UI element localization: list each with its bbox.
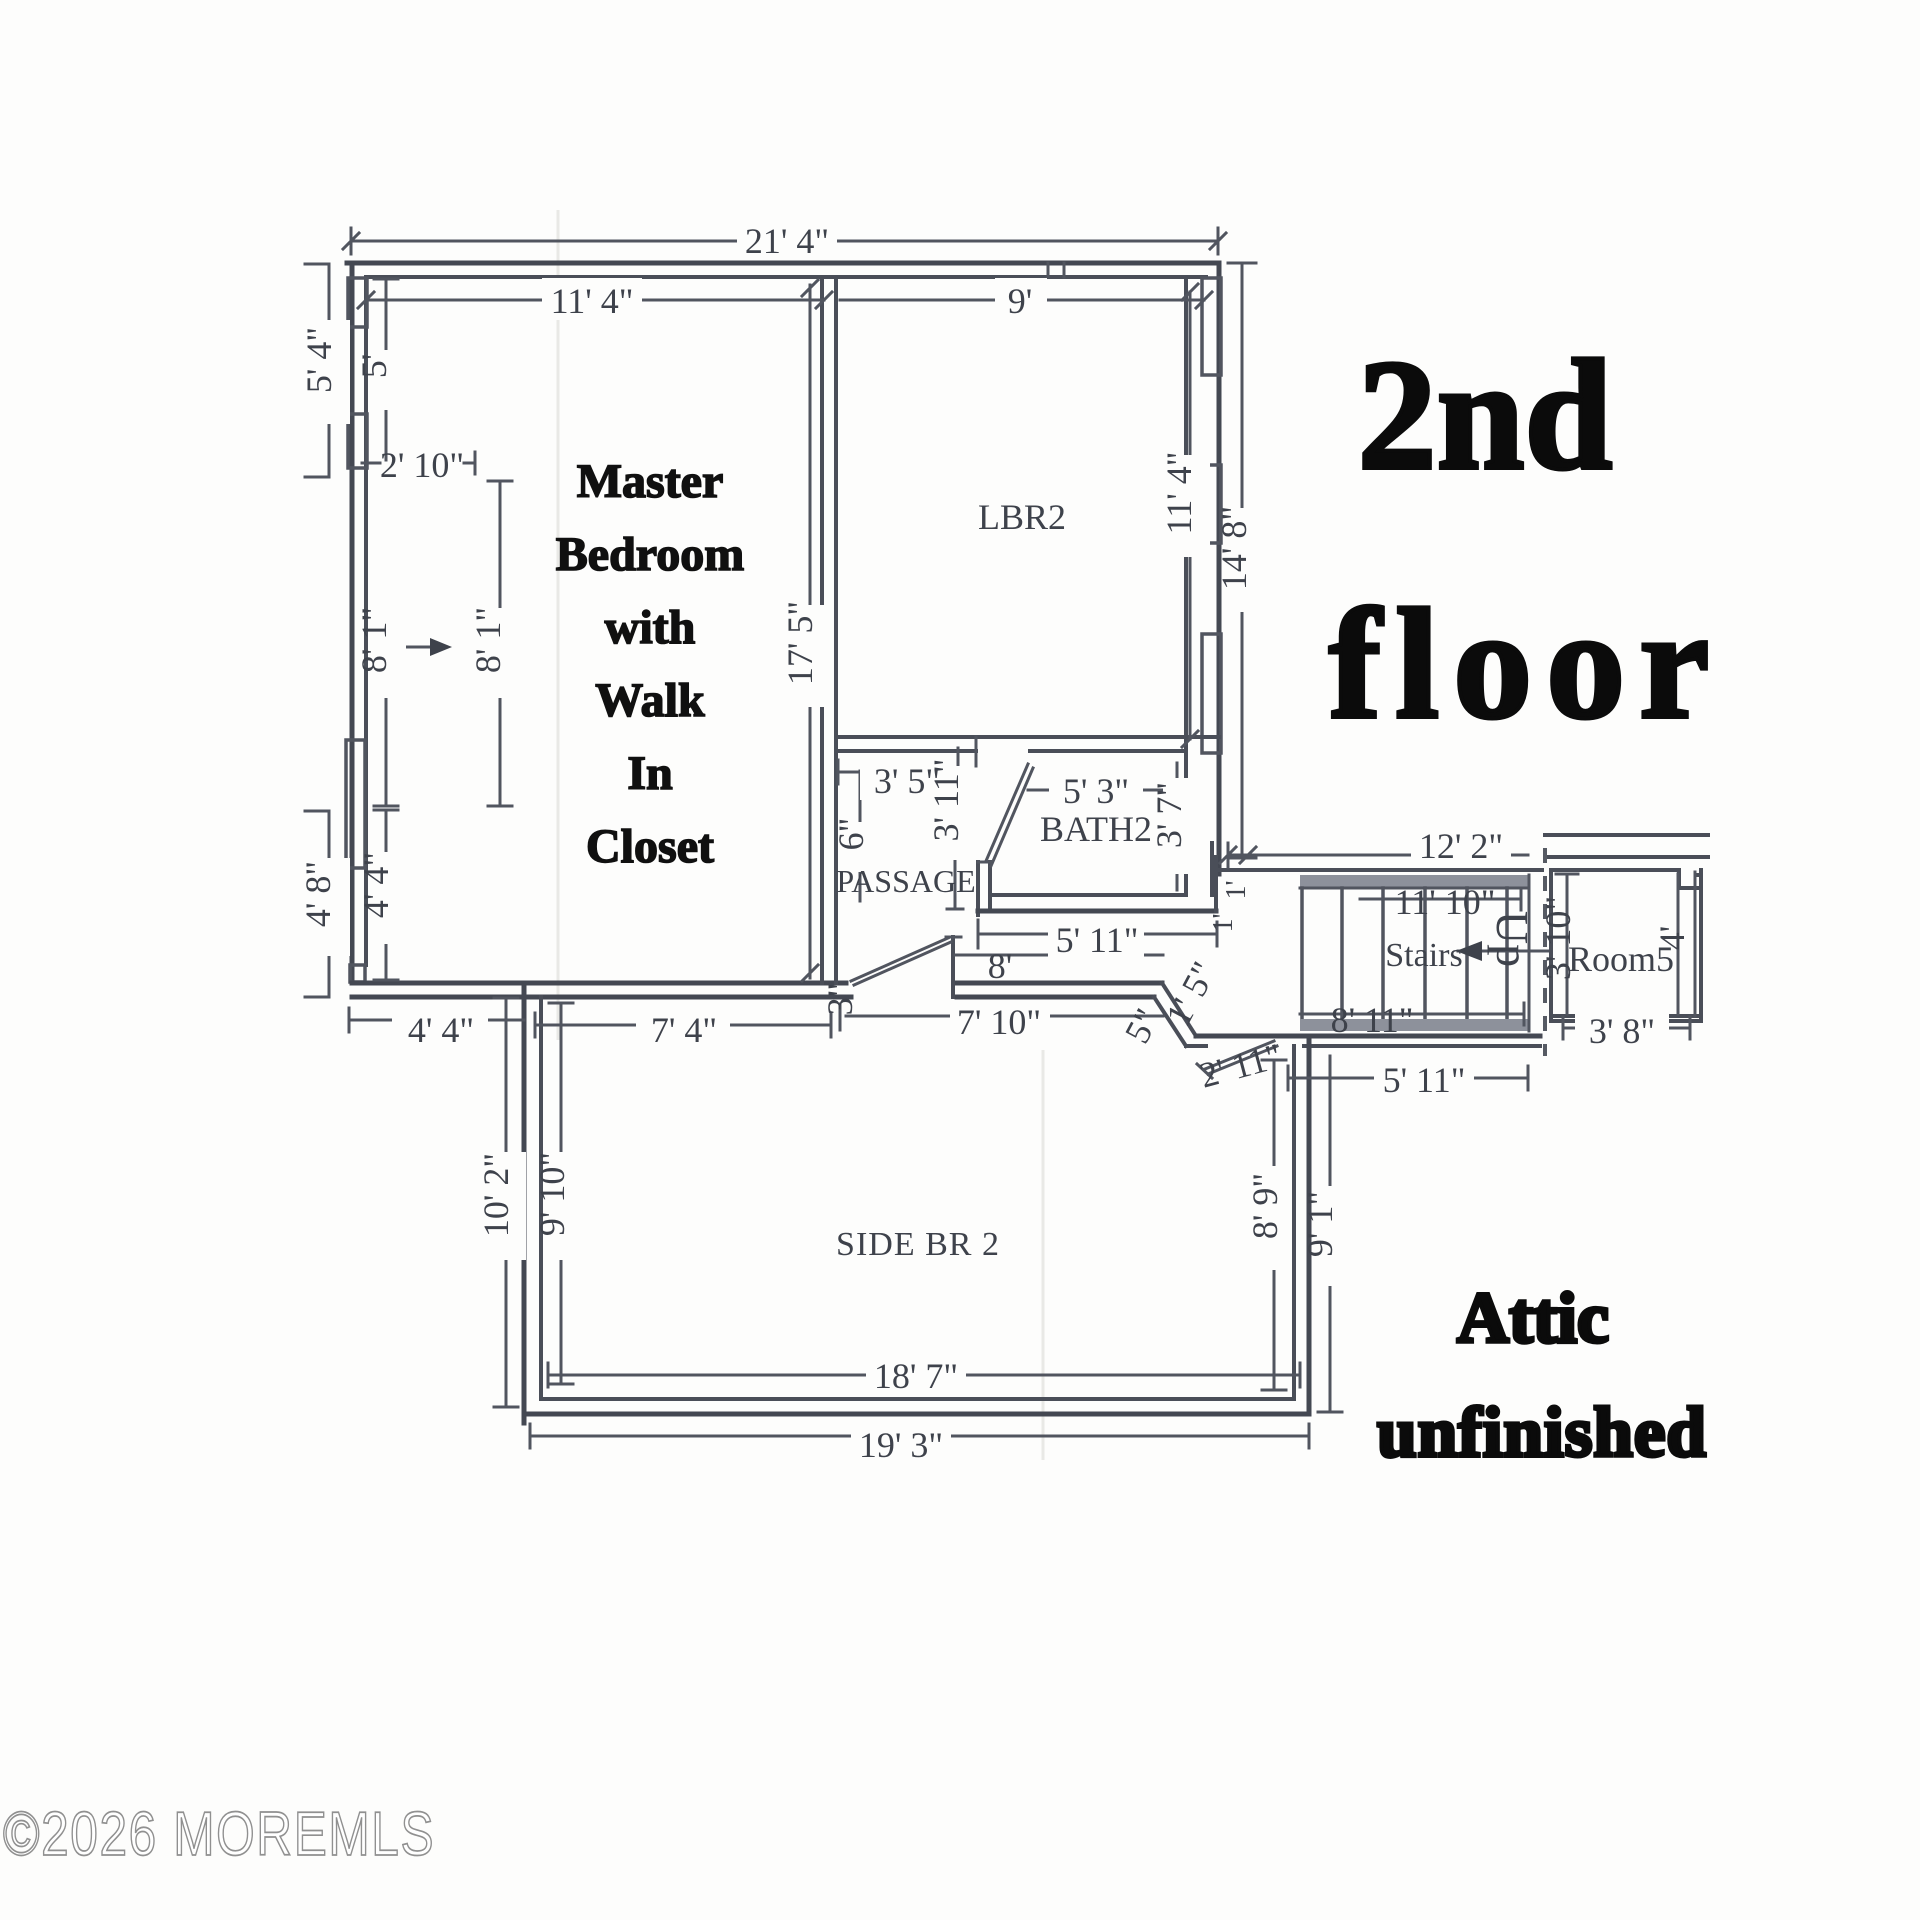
svg-text:5' 3": 5' 3" (1063, 771, 1129, 811)
svg-text:8' 9": 8' 9" (1245, 1173, 1285, 1239)
svg-text:8' 11": 8' 11" (1331, 1000, 1414, 1040)
svg-text:SIDE BR 2: SIDE BR 2 (836, 1226, 1000, 1263)
svg-text:12' 2": 12' 2" (1419, 826, 1503, 866)
svg-text:3' 11": 3' 11" (926, 759, 966, 842)
svg-text:4' 8": 4' 8" (298, 861, 338, 927)
svg-text:11' 10": 11' 10" (1395, 882, 1496, 922)
svg-text:17' 5": 17' 5" (780, 601, 820, 685)
svg-text:1': 1' (1221, 880, 1252, 899)
svg-text:3' 8": 3' 8" (1589, 1011, 1655, 1051)
svg-text:LBR2: LBR2 (978, 497, 1066, 537)
svg-text:7' 10": 7' 10" (957, 1002, 1041, 1042)
svg-text:PASSAGE: PASSAGE (836, 863, 975, 899)
svg-text:2' 10": 2' 10" (380, 445, 464, 485)
svg-text:7' 4": 7' 4" (651, 1010, 717, 1050)
svg-text:4' 4": 4' 4" (408, 1010, 474, 1050)
svg-text:Up: Up (1487, 911, 1538, 967)
svg-text:9' 1": 9' 1" (1300, 1191, 1340, 1257)
svg-text:11' 4": 11' 4" (1159, 452, 1199, 535)
svg-text:2nd: 2nd (1358, 328, 1613, 503)
svg-text:5' 11": 5' 11" (1383, 1060, 1466, 1100)
svg-text:Closet: Closet (586, 820, 714, 873)
svg-text:3' 7": 3' 7" (1149, 782, 1189, 848)
svg-text:Bedroom: Bedroom (556, 528, 744, 581)
svg-text:floor: floor (1329, 577, 1724, 752)
svg-text:10' 2": 10' 2" (476, 1153, 516, 1237)
svg-text:Attic: Attic (1457, 1278, 1609, 1358)
svg-text:Master: Master (577, 455, 724, 508)
svg-text:8' 1": 8' 1" (468, 607, 508, 673)
svg-text:14' 8": 14' 8" (1214, 506, 1254, 590)
svg-text:4' 4": 4' 4" (356, 852, 396, 918)
svg-text:19' 3": 19' 3" (859, 1425, 943, 1465)
svg-text:5': 5' (354, 354, 394, 379)
svg-text:In: In (627, 747, 672, 800)
svg-text:Stairs: Stairs (1385, 937, 1462, 974)
svg-text:with: with (605, 601, 696, 654)
svg-text:©2026 MOREMLS: ©2026 MOREMLS (3, 1799, 435, 1869)
svg-text:9' 10": 9' 10" (532, 1152, 572, 1236)
svg-text:18' 7": 18' 7" (874, 1356, 958, 1396)
svg-text:5' 4": 5' 4" (299, 327, 339, 393)
svg-text:8': 8' (988, 946, 1013, 986)
svg-text:Walk: Walk (595, 674, 705, 727)
svg-text:6": 6" (831, 818, 871, 851)
svg-text:9': 9' (1008, 281, 1033, 321)
svg-text:unfinished: unfinished (1377, 1394, 1707, 1472)
svg-text:Room5: Room5 (1568, 939, 1674, 979)
svg-text:11' 4": 11' 4" (551, 281, 634, 321)
svg-text:8' 1": 8' 1" (354, 607, 394, 673)
svg-text:3": 3" (820, 983, 860, 1016)
svg-text:BATH2: BATH2 (1040, 809, 1152, 849)
svg-text:1': 1' (1208, 913, 1239, 932)
svg-text:5' 11": 5' 11" (1056, 920, 1139, 960)
svg-text:21' 4": 21' 4" (745, 221, 829, 261)
